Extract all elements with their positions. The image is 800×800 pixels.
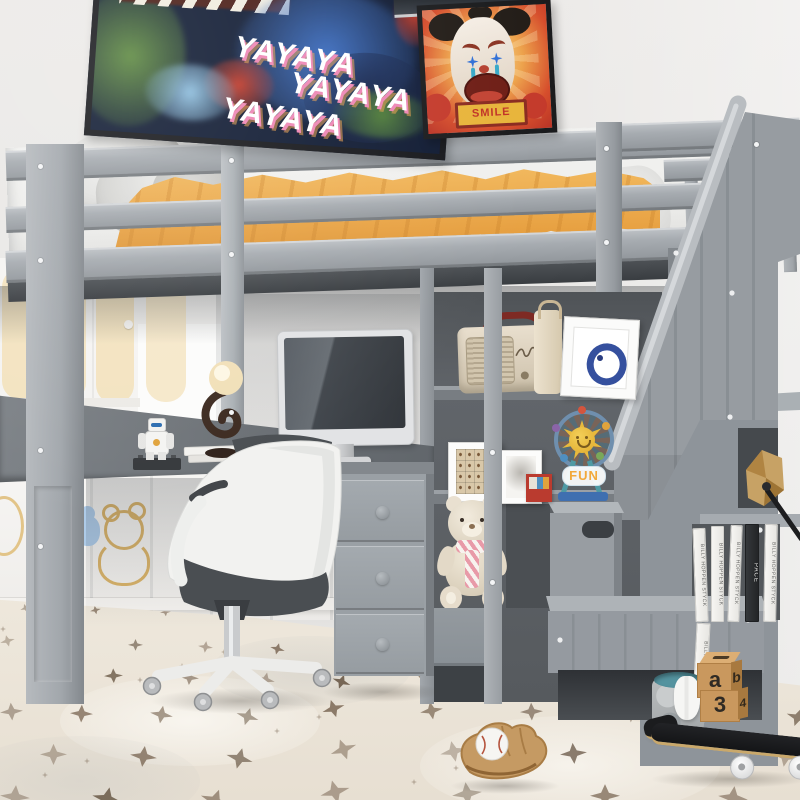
bear-decal-gold-partial bbox=[0, 496, 24, 556]
rug-speck bbox=[411, 779, 417, 785]
black-rod-knob bbox=[762, 482, 771, 491]
rug-star bbox=[317, 777, 352, 800]
ferris-wheel-toy: FUN bbox=[552, 404, 614, 506]
screw-cap bbox=[229, 410, 234, 415]
ferris-cabin bbox=[552, 424, 560, 432]
screw-cap bbox=[604, 146, 609, 151]
teddy-eye bbox=[460, 518, 464, 522]
sun-face bbox=[569, 427, 595, 453]
baseball-glove bbox=[445, 715, 560, 795]
screw-cap bbox=[38, 544, 43, 549]
book-spine: BILLY HOPPEN STYCK bbox=[711, 526, 724, 622]
lego-box-art bbox=[529, 477, 549, 489]
skateboard-wheel bbox=[729, 754, 755, 780]
screw-cap bbox=[38, 258, 43, 263]
screw-cap bbox=[490, 580, 495, 585]
drawer-knob bbox=[376, 638, 389, 651]
bag-handle bbox=[538, 300, 562, 319]
screw-cap bbox=[754, 142, 759, 147]
poster-graffiti: YAYAYA YAYAYA YAYAYA bbox=[84, 0, 458, 160]
sun-eye bbox=[576, 436, 579, 439]
screw-cap bbox=[38, 164, 43, 169]
book-spine-dark: PACE bbox=[745, 524, 759, 622]
ferris-cabin bbox=[560, 454, 568, 462]
ferris-cabin bbox=[578, 406, 586, 414]
ferris-cabin bbox=[596, 452, 604, 460]
wheel-hub bbox=[796, 763, 800, 771]
screw-cap bbox=[229, 252, 234, 257]
block-coin-slot bbox=[712, 656, 730, 659]
office-chair bbox=[140, 415, 350, 715]
screw-cap bbox=[229, 158, 234, 163]
screw-cap bbox=[490, 450, 495, 455]
teddy-scarf-tail bbox=[465, 550, 479, 588]
screw-cap bbox=[604, 240, 609, 245]
book-spine: BILLY HOPPEN STYCK bbox=[763, 524, 778, 622]
skateboard-deck bbox=[650, 722, 800, 761]
teddy-paw bbox=[446, 592, 456, 604]
ferris-cabin bbox=[602, 422, 610, 430]
wheel-hub bbox=[738, 763, 746, 771]
framed-ring-art bbox=[560, 316, 640, 400]
poster-clown: SMILE bbox=[417, 0, 558, 139]
rug-speck bbox=[0, 626, 6, 632]
desk-leg-inset-panel bbox=[34, 486, 72, 682]
sun-smile bbox=[577, 440, 591, 448]
scene-kids-loft-bed-photo: BILLY HOPPEN STYCK BILLY HOPPEN STYCK BI… bbox=[0, 0, 800, 800]
book-row: BILLY HOPPEN STYCK BILLY HOPPEN STYCK BI… bbox=[694, 522, 778, 620]
sun-eye bbox=[585, 436, 588, 439]
fun-label: FUN bbox=[562, 466, 606, 486]
book-spine: BILLY HOPPEN STYCK bbox=[727, 525, 742, 622]
clown-sign: SMILE bbox=[455, 99, 528, 129]
rug-star bbox=[0, 634, 16, 649]
lego-box bbox=[526, 474, 552, 502]
rug-star bbox=[327, 735, 360, 764]
drawer-side bbox=[426, 474, 434, 676]
bed-post-left bbox=[26, 144, 84, 704]
teddy-nose bbox=[469, 524, 475, 529]
book-spine: BILLY HOPPEN STYCK bbox=[692, 528, 708, 622]
canvas-bag bbox=[534, 310, 562, 394]
shelf-stile-front bbox=[484, 268, 502, 704]
drawer-knob bbox=[376, 572, 389, 585]
rug-star bbox=[104, 668, 124, 684]
rug-star bbox=[0, 701, 24, 721]
drawer-knob bbox=[376, 506, 389, 519]
rug-star bbox=[197, 784, 233, 800]
ferris-base bbox=[558, 492, 608, 501]
screw-cap bbox=[38, 448, 43, 453]
